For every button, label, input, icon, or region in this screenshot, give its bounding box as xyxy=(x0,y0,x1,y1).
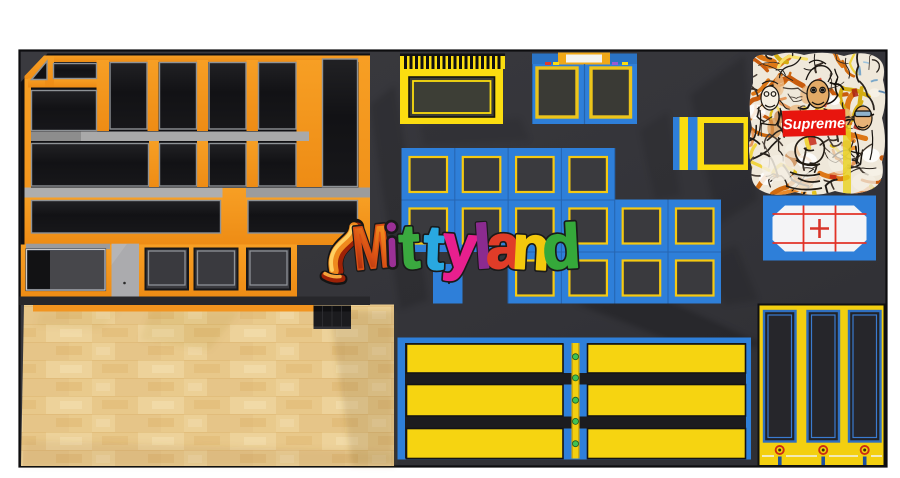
svg-text:t: t xyxy=(397,213,421,283)
svg-text:Supreme: Supreme xyxy=(783,116,845,134)
svg-text:d: d xyxy=(541,212,582,283)
